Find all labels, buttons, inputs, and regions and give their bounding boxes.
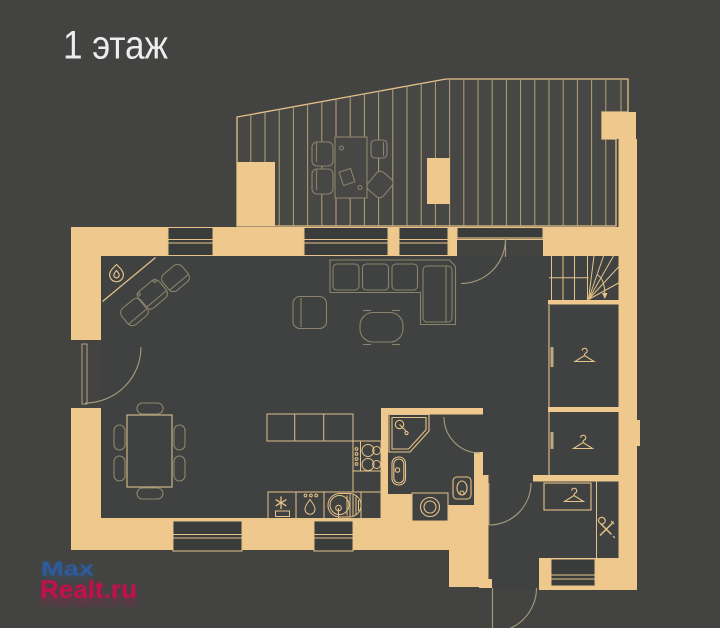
svg-text:Realt.ru: Realt.ru: [40, 576, 137, 604]
svg-text:1 этаж: 1 этаж: [63, 24, 168, 68]
